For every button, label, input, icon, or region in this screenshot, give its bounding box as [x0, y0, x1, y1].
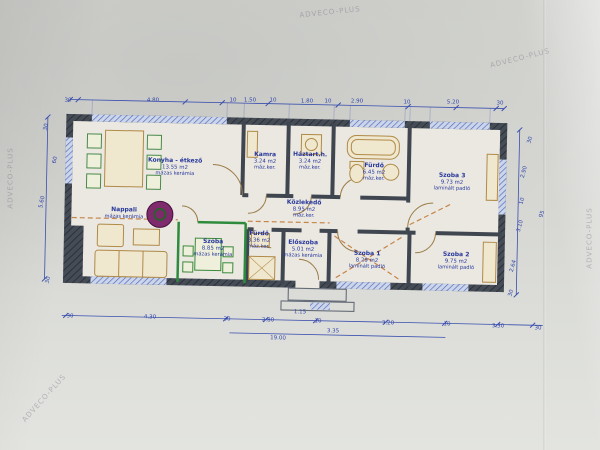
- dimension-top: 5.20: [447, 99, 459, 105]
- entry-stoop: [281, 288, 354, 312]
- rl-floor: laminált padló: [438, 264, 475, 271]
- dimension-top: 10: [269, 97, 276, 103]
- dimension-bottom: 30: [223, 316, 230, 322]
- rl-floor: mázas kerámia: [148, 170, 202, 177]
- floor-plan-photo: Konyha - étkező13.55 m2mázas kerámiaKamr…: [0, 0, 600, 450]
- armchair: [97, 224, 123, 247]
- room-label: Fürdő3.36 m2máz.ker.: [248, 230, 271, 250]
- watermark-text: ADVECO-PLUS: [6, 147, 14, 209]
- rl-floor: mázas kerámia: [104, 213, 143, 220]
- bathtub: [347, 135, 399, 159]
- dimension-top: 30: [64, 97, 71, 103]
- wardrobe-room2: [483, 242, 497, 282]
- dimension-top: 10: [324, 98, 331, 104]
- rl-floor: máz.ker.: [293, 164, 327, 171]
- dimension-top: 1.50: [244, 97, 256, 103]
- dimension-bottom: 30: [66, 313, 73, 319]
- room-label: Szoba8.85 m2mázas kerámia: [193, 238, 232, 258]
- room-label: Háztart.h.3.24 m2máz.ker.: [293, 151, 328, 171]
- dimension-totals: 19.00: [270, 335, 286, 341]
- room-label: Előszoba5.01 m2mázas kerámia: [283, 239, 322, 259]
- entry-opening: [295, 280, 319, 289]
- dimension-top: 4.80: [147, 97, 159, 103]
- room-label: Nappalimázas kerámia: [104, 206, 143, 220]
- dimension-bottom: 4.30: [144, 314, 156, 320]
- rl-floor: laminált padló: [434, 185, 471, 192]
- dimension-bottom: 2.80: [262, 317, 274, 323]
- dimension-top: 1.80: [301, 98, 313, 104]
- wardrobe-room3: [486, 154, 498, 200]
- dimension-top: 10: [229, 97, 236, 103]
- room-label: Konyha - étkező13.55 m2mázas kerámia: [148, 157, 203, 178]
- room-label: Szoba 29.75 m2laminált padló: [438, 251, 475, 271]
- floor-plan-drawing: [0, 0, 600, 450]
- dimension-top: 10: [403, 99, 410, 105]
- rl-floor: máz.ker.: [248, 243, 271, 249]
- dimension-bottom: 3.30: [492, 323, 504, 329]
- rl-floor: máz.ker.: [254, 164, 277, 170]
- dimension-top: 30: [496, 100, 503, 106]
- room-label: Szoba 18.29 m2laminált padló: [349, 250, 386, 270]
- dimension-bottom: 30: [534, 325, 541, 331]
- coffee-table: [133, 229, 159, 246]
- dimension-bottom: 3.20: [382, 320, 394, 326]
- rl-floor: máz.ker.: [286, 212, 321, 219]
- rl-floor: mázas kerámia: [193, 251, 232, 258]
- dimension-totals: 1.15: [294, 309, 306, 315]
- rl-floor: máz.ker.: [363, 175, 386, 181]
- room-label: Fürdő6.45 m2máz.ker.: [363, 162, 386, 182]
- sofa: [95, 250, 168, 278]
- watermark-text: ADVECO-PLUS: [585, 207, 593, 269]
- room-label: Közlekedő8.95 m2máz.ker.: [286, 199, 321, 219]
- dimension-top: 2.90: [351, 98, 363, 104]
- room-label: Szoba 39.73 m2laminált padló: [434, 172, 471, 192]
- dimension-totals: 3.35: [327, 328, 339, 334]
- dimension-bottom: 10: [314, 318, 321, 324]
- round-table: [147, 201, 174, 228]
- rl-floor: laminált padló: [349, 263, 386, 270]
- room-label: Kamra3.24 m2máz.ker.: [254, 151, 277, 171]
- dimension-bottom: 10: [443, 321, 450, 327]
- dining-table: [104, 130, 143, 187]
- wardrobe-left: [64, 225, 83, 281]
- rl-floor: mázas kerámia: [283, 252, 322, 259]
